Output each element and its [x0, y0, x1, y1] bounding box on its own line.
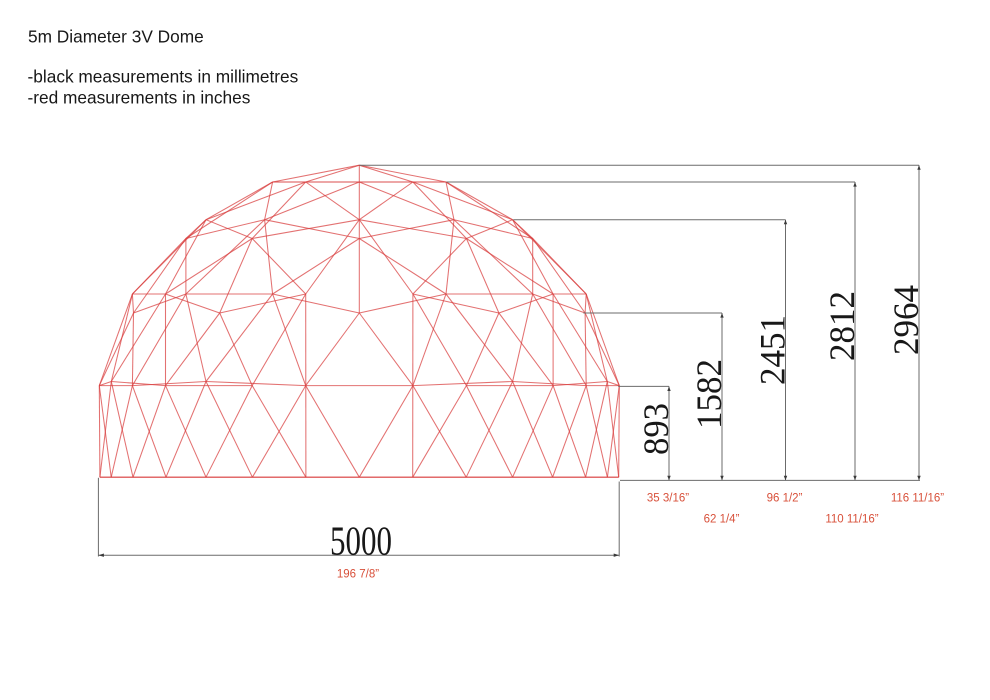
svg-text:2451: 2451: [753, 315, 793, 385]
svg-text:5m Diameter 3V Dome: 5m Diameter 3V Dome: [28, 27, 204, 47]
svg-text:96 1/2”: 96 1/2”: [767, 493, 803, 505]
svg-text:-black measurements in millime: -black measurements in millimetres: [28, 67, 299, 87]
svg-text:116 11/16”: 116 11/16”: [891, 493, 944, 505]
svg-text:5000: 5000: [330, 518, 392, 564]
svg-text:2812: 2812: [822, 291, 862, 361]
svg-text:1582: 1582: [689, 359, 729, 429]
svg-text:893: 893: [636, 403, 676, 455]
svg-text:62 1/4”: 62 1/4”: [704, 514, 740, 526]
svg-text:-red measurements in inches: -red measurements in inches: [28, 88, 251, 108]
svg-text:35 3/16”: 35 3/16”: [647, 493, 689, 505]
svg-text:196 7/8”: 196 7/8”: [337, 569, 379, 581]
svg-text:2964: 2964: [886, 285, 926, 355]
svg-text:110 11/16”: 110 11/16”: [825, 514, 878, 526]
